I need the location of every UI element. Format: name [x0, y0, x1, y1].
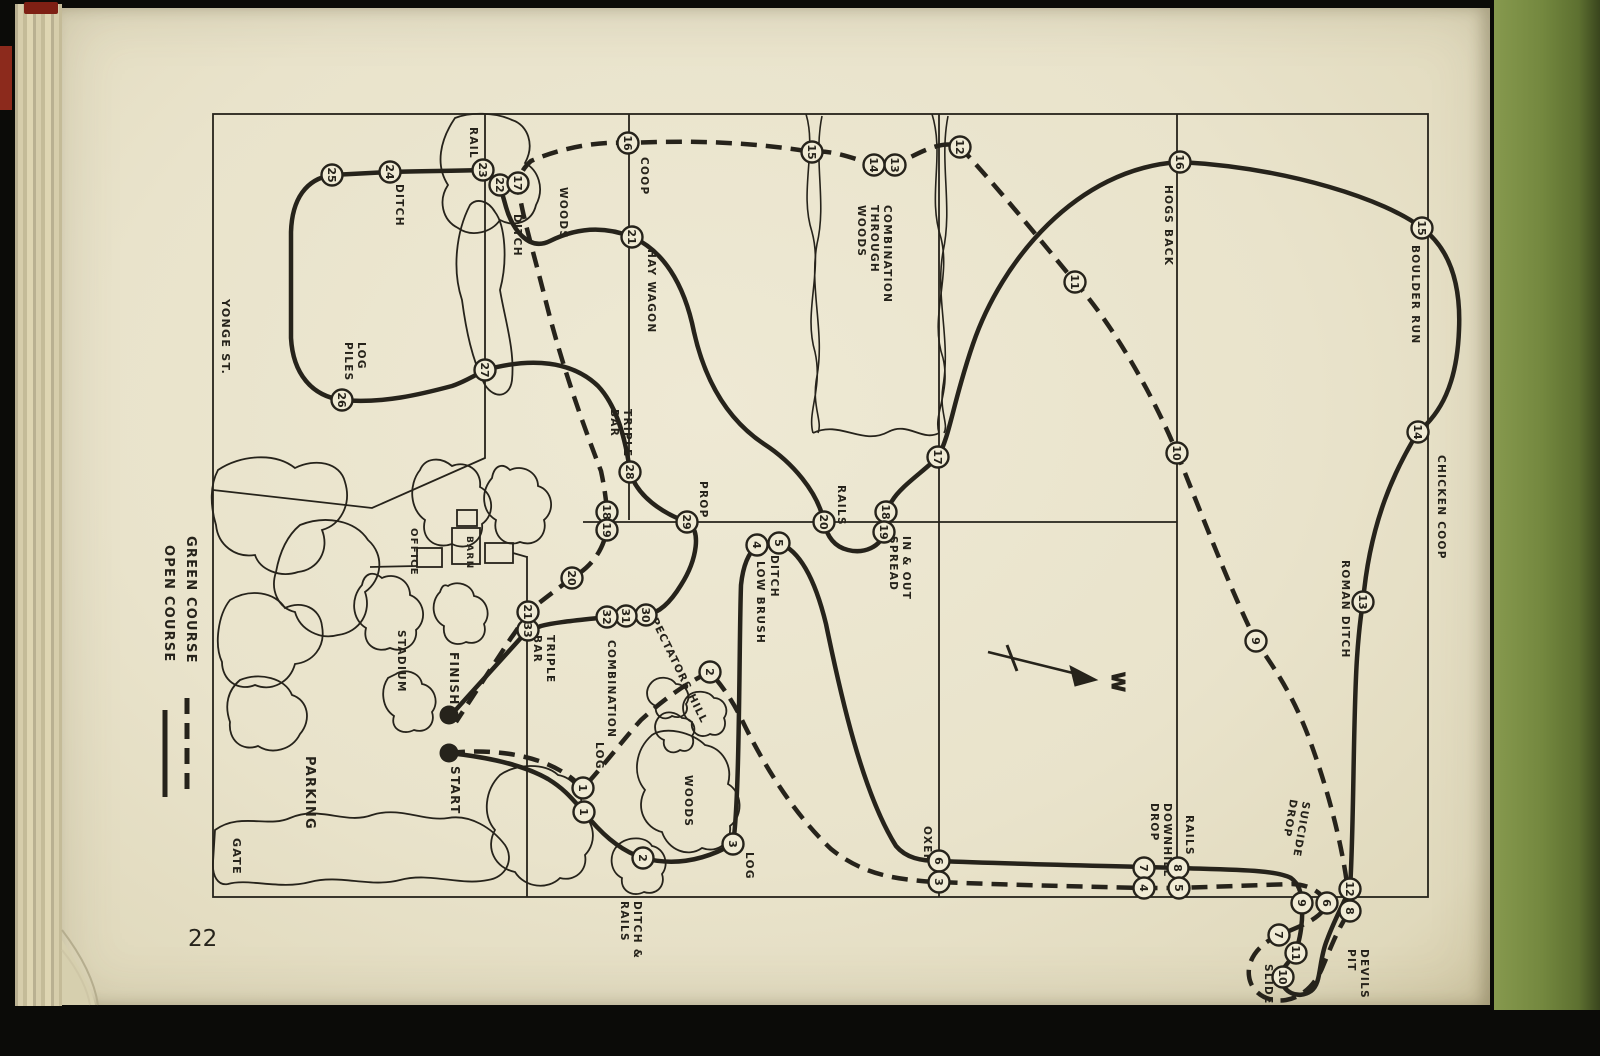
- station-open-16: 16: [1170, 152, 1191, 173]
- station-number: 8: [1171, 864, 1184, 872]
- station-green-10: 10: [1167, 443, 1188, 464]
- station-green-16: 16: [618, 133, 639, 154]
- station-number: 32: [600, 609, 613, 624]
- compass-arrow-head: [1070, 666, 1097, 686]
- finish-dot: [440, 706, 459, 725]
- station-green-21: 21: [518, 602, 539, 623]
- map-label: SLIDE: [1262, 964, 1274, 1005]
- station-number: 15: [805, 144, 818, 159]
- station-green-17: 17: [508, 173, 529, 194]
- station-number: 24: [383, 164, 396, 180]
- map-label: RAIL: [467, 127, 479, 159]
- map-label: FINISH: [447, 652, 461, 706]
- station-open-15: 15: [1412, 218, 1433, 239]
- map-label: COMBINATIONTHROUGHWOODS: [855, 205, 893, 303]
- map-label: IN & OUTSPREAD: [887, 536, 912, 600]
- station-number: 13: [1356, 594, 1369, 609]
- station-number: 14: [1411, 424, 1424, 440]
- station-number: 2: [636, 854, 649, 862]
- station-number: 11: [1068, 274, 1081, 289]
- station-green-11: 11: [1065, 272, 1086, 293]
- station-number: 1: [577, 808, 590, 816]
- station-number: 8: [1343, 907, 1356, 915]
- station-number: 19: [877, 524, 890, 539]
- station-number: 4: [1137, 884, 1150, 892]
- station-open-26: 26: [332, 390, 353, 411]
- scanned-book-page: W GREEN COURSE OPEN COURSE RAILWOODSCOOP…: [0, 0, 1600, 1056]
- map-label: COOP: [638, 157, 650, 195]
- course-map: W GREEN COURSE OPEN COURSE RAILWOODSCOOP…: [0, 0, 1600, 1056]
- station-green-12: 12: [950, 137, 971, 158]
- station-open-21: 21: [622, 227, 643, 248]
- station-open-1: 1: [574, 802, 595, 823]
- station-green-9: 9: [1246, 631, 1267, 652]
- station-number: 33: [521, 622, 534, 637]
- station-green-14: 14: [864, 155, 885, 176]
- map-label: SUICIDEDROP: [1277, 798, 1311, 858]
- station-open-6: 6: [929, 851, 950, 872]
- map-label: WOODS: [682, 775, 694, 827]
- station-number: 11: [1289, 945, 1302, 960]
- map-label: START: [448, 766, 462, 815]
- station-number: 31: [619, 608, 632, 623]
- station-green-4: 4: [1134, 878, 1155, 899]
- station-green-19: 19: [597, 520, 618, 541]
- map-label: DITCH: [768, 555, 780, 598]
- station-number: 18: [600, 504, 613, 519]
- station-number: 12: [1343, 881, 1356, 896]
- map-label: HAY WAGON: [645, 249, 657, 333]
- station-number: 30: [639, 607, 652, 623]
- map-label: LOGPILES: [342, 342, 367, 382]
- station-open-30: 30: [636, 605, 657, 626]
- station-green-5: 5: [1169, 878, 1190, 899]
- compass-west-label: W: [1107, 672, 1128, 692]
- station-open-18: 18: [876, 502, 897, 523]
- map-label: PROP: [697, 481, 709, 519]
- station-open-11: 11: [1286, 943, 1307, 964]
- page-corner-curl: [62, 930, 98, 1005]
- station-open-32: 32: [597, 607, 618, 628]
- station-number: 10: [1170, 445, 1183, 461]
- map-legend: GREEN COURSE OPEN COURSE: [161, 536, 198, 797]
- map-label: CHICKEN COOP: [1435, 455, 1447, 560]
- station-open-7: 7: [1134, 858, 1155, 879]
- station-number: 20: [565, 570, 578, 586]
- station-green-7: 7: [1269, 925, 1290, 946]
- station-number: 13: [888, 157, 901, 172]
- station-number: 1: [576, 784, 589, 792]
- station-number: 5: [1172, 884, 1185, 892]
- map-label: RAILS: [1183, 815, 1195, 856]
- station-open-27: 27: [475, 360, 496, 381]
- station-number: 18: [879, 504, 892, 519]
- station-number: 27: [478, 362, 491, 377]
- map-label: OFFICE: [408, 528, 419, 576]
- station-green-8: 8: [1340, 901, 1361, 922]
- station-open-28: 28: [620, 462, 641, 483]
- station-number: 19: [600, 522, 613, 537]
- station-number: 3: [932, 878, 945, 886]
- station-number: 5: [772, 539, 785, 547]
- station-open-9: 9: [1292, 893, 1313, 914]
- station-open-12: 12: [1340, 879, 1361, 900]
- map-label: BARN: [464, 536, 474, 570]
- station-open-3: 3: [723, 834, 744, 855]
- map-label: PARKING: [302, 756, 317, 830]
- start-dot: [440, 744, 459, 763]
- station-number: 22: [493, 177, 506, 192]
- station-green-2: 2: [700, 662, 721, 683]
- station-number: 17: [511, 175, 524, 190]
- legend-green-course-label: GREEN COURSE: [183, 536, 198, 664]
- station-number: 4: [750, 541, 763, 549]
- compass-arrow-shaft: [988, 652, 1085, 676]
- page-number: 22: [188, 926, 217, 952]
- station-number: 7: [1137, 864, 1150, 872]
- station-green-20: 20: [562, 568, 583, 589]
- map-label: TRIPLEBAR: [608, 409, 633, 458]
- station-number: 20: [817, 514, 830, 530]
- open-course-path: [291, 162, 1459, 995]
- station-number: 10: [1276, 969, 1289, 985]
- station-open-17: 17: [928, 447, 949, 468]
- station-open-8: 8: [1168, 858, 1189, 879]
- map-label: BOULDER RUN: [1409, 245, 1421, 344]
- station-open-29: 29: [677, 512, 698, 533]
- station-open-25: 25: [322, 165, 343, 186]
- station-open-20: 20: [814, 512, 835, 533]
- station-open-23: 23: [473, 160, 494, 181]
- station-number: 21: [625, 229, 638, 244]
- station-number: 14: [867, 157, 880, 173]
- map-label: DITCH &RAILS: [618, 901, 643, 959]
- station-number: 6: [1320, 899, 1333, 907]
- map-label: TRIPLEBAR: [531, 635, 556, 684]
- map-label: COMBINATION: [605, 640, 617, 738]
- station-green-3: 3: [929, 872, 950, 893]
- map-label: DITCH: [511, 214, 523, 257]
- station-number: 9: [1249, 637, 1262, 645]
- map-label: DEVILSPIT: [1345, 949, 1370, 999]
- station-open-5: 5: [769, 533, 790, 554]
- station-open-13: 13: [1353, 592, 1374, 613]
- station-open-4: 4: [747, 535, 768, 556]
- station-number: 16: [621, 135, 634, 151]
- station-number: 21: [521, 604, 534, 619]
- station-green-15: 15: [802, 142, 823, 163]
- compass: W: [988, 645, 1128, 692]
- map-label: DITCH: [393, 184, 405, 227]
- map-label: LOW BRUSH: [754, 561, 766, 644]
- station-number: 23: [476, 162, 489, 177]
- station-number: 17: [931, 449, 944, 464]
- station-number: 15: [1415, 220, 1428, 235]
- map-label: STADIUM: [395, 630, 407, 693]
- station-open-2: 2: [633, 848, 654, 869]
- map-label: WOODS: [557, 187, 569, 239]
- station-green-1: 1: [573, 778, 594, 799]
- map-label: ROMAN DITCH: [1339, 560, 1351, 659]
- station-green-13: 13: [885, 155, 906, 176]
- station-number: 25: [325, 167, 338, 182]
- station-number: 26: [335, 392, 348, 408]
- station-number: 2: [703, 668, 716, 676]
- map-label: LOG: [593, 742, 605, 770]
- station-number: 29: [680, 514, 693, 529]
- station-number: 12: [953, 139, 966, 154]
- station-number: 28: [623, 464, 636, 479]
- station-number: 9: [1295, 899, 1308, 907]
- map-label: GATE: [230, 838, 243, 875]
- map-label: LOG: [743, 852, 755, 880]
- station-number: 3: [726, 840, 739, 848]
- station-number: 6: [932, 857, 945, 865]
- station-green-6: 6: [1317, 893, 1338, 914]
- legend-open-course-label: OPEN COURSE: [161, 545, 176, 662]
- station-open-19: 19: [874, 522, 895, 543]
- station-open-14: 14: [1408, 422, 1429, 443]
- station-number: 7: [1272, 931, 1285, 939]
- map-label: YONGE ST.: [219, 298, 232, 375]
- station-open-10: 10: [1273, 967, 1294, 988]
- station-open-24: 24: [380, 162, 401, 183]
- map-label: RAILS: [835, 485, 847, 526]
- station-number: 16: [1173, 154, 1186, 170]
- map-label: HOGS BACK: [1162, 185, 1174, 266]
